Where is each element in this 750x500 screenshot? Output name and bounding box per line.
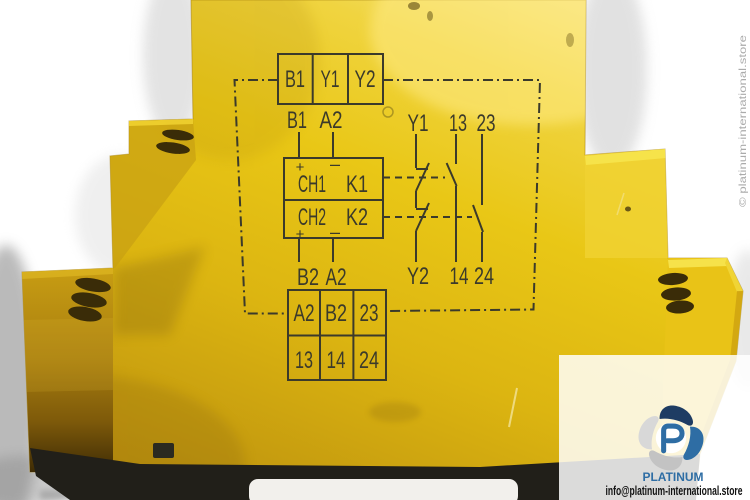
svg-text:PLATINUM: PLATINUM	[643, 470, 704, 484]
svg-text:Y2: Y2	[407, 263, 429, 290]
svg-text:13: 13	[295, 347, 313, 374]
svg-text:© platinum-international.store: © platinum-international.store	[738, 34, 749, 207]
svg-text:A2: A2	[326, 264, 347, 291]
svg-text:24: 24	[359, 347, 379, 374]
svg-text:Y2: Y2	[355, 66, 376, 93]
svg-text:B1: B1	[285, 66, 305, 93]
svg-text:Y1: Y1	[321, 66, 340, 93]
svg-text:23: 23	[360, 300, 379, 327]
svg-text:–: –	[330, 154, 340, 174]
svg-text:24: 24	[474, 263, 494, 290]
svg-text:B2: B2	[297, 264, 319, 291]
svg-text:A2: A2	[320, 107, 343, 134]
svg-text:+: +	[296, 226, 305, 243]
svg-text:14: 14	[450, 263, 469, 290]
svg-text:B2: B2	[325, 300, 347, 327]
svg-text:K1: K1	[346, 171, 368, 198]
svg-text:13: 13	[449, 110, 467, 137]
svg-text:+: +	[296, 159, 305, 176]
svg-text:14: 14	[327, 347, 346, 374]
svg-text:A2: A2	[294, 300, 315, 327]
svg-text:K2: K2	[346, 204, 368, 231]
svg-text:B1: B1	[287, 107, 307, 134]
svg-text:23: 23	[477, 110, 496, 137]
svg-text:–: –	[330, 222, 340, 242]
svg-text:info@platinum-international.st: info@platinum-international.store	[606, 483, 743, 498]
svg-text:Y1: Y1	[408, 110, 429, 137]
